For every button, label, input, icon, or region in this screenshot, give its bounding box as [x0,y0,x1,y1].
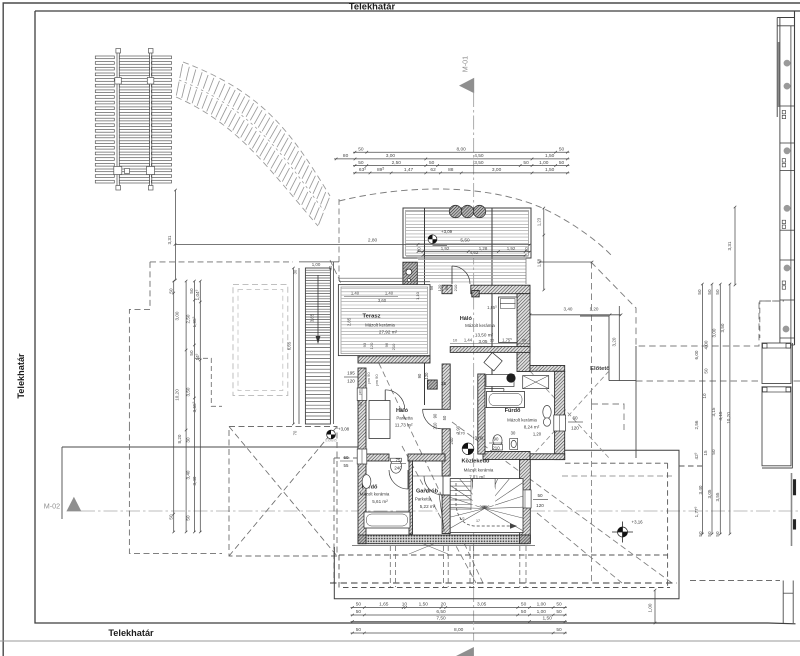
svg-text:240: 240 [394,466,402,471]
svg-text:Mázolt kerámia: Mázolt kerámia [365,323,395,328]
svg-text:50: 50 [537,493,543,498]
svg-text:3,50: 3,50 [185,387,190,396]
svg-text:2,56: 2,56 [694,420,699,429]
svg-text:4,62: 4,62 [470,250,479,255]
svg-text:60: 60 [344,455,349,460]
svg-text:120: 120 [571,426,579,431]
svg-text:Mázolt kerámia: Mázolt kerámia [507,418,537,423]
svg-text:11,73 m²: 11,73 m² [395,423,413,428]
svg-text:210: 210 [433,422,438,430]
svg-text:2,85: 2,85 [347,317,352,326]
svg-text:3,05: 3,05 [707,489,712,498]
svg-text:2,80: 2,80 [368,238,378,244]
svg-text:M-01: M-01 [461,56,470,72]
svg-text:120: 120 [347,379,355,384]
svg-text:6,50: 6,50 [436,609,446,615]
svg-text:3,00: 3,00 [386,153,396,159]
svg-text:15: 15 [703,450,708,456]
svg-text:35: 35 [441,381,446,386]
svg-text:55: 55 [344,463,349,468]
svg-text:Előtető: Előtető [325,439,336,443]
svg-text:10: 10 [702,393,707,399]
svg-text:50: 50 [556,602,562,608]
svg-text:90: 90 [417,373,422,378]
svg-text:50: 50 [698,531,703,537]
svg-text:50: 50 [711,449,716,455]
svg-text:1/2: 1/2 [460,517,465,521]
svg-text:50: 50 [559,160,565,166]
svg-text:50: 50 [169,288,174,294]
svg-text:3,00: 3,00 [712,328,717,337]
svg-text:210: 210 [492,446,500,451]
svg-text:3,40: 3,40 [185,470,190,479]
svg-text:3,05: 3,05 [477,602,487,608]
svg-text:210: 210 [453,284,458,291]
svg-text:10: 10 [453,338,458,343]
svg-text:60: 60 [572,416,578,421]
svg-text:3,50: 3,50 [474,160,484,166]
svg-text:Telekhatár: Telekhatár [108,628,154,638]
svg-text:1,00: 1,00 [648,603,653,612]
svg-text:10,20: 10,20 [726,412,731,424]
svg-text:1,50: 1,50 [545,153,555,159]
svg-text:1,00: 1,00 [539,160,549,166]
svg-text:Előtető: Előtető [590,366,610,372]
svg-text:Gardrób: Gardrób [416,489,439,495]
svg-text:50: 50 [521,609,527,615]
svg-text:8,20: 8,20 [177,434,182,443]
svg-text:5,61 m²: 5,61 m² [372,499,388,504]
svg-text:3,15: 3,15 [711,407,716,416]
svg-text:1,00: 1,00 [537,609,547,615]
svg-text:1,40: 1,40 [385,291,394,296]
svg-text:pm 90: pm 90 [374,374,379,386]
svg-text:90: 90 [494,437,499,442]
svg-text:50: 50 [356,609,362,615]
svg-text:62: 62 [430,167,436,173]
svg-text:27,92 m²: 27,92 m² [379,330,398,335]
svg-text:70: 70 [293,430,298,435]
svg-text:50: 50 [358,146,364,152]
svg-text:3,40: 3,40 [192,476,197,485]
svg-text:50: 50 [189,288,194,294]
svg-text:1,92: 1,92 [441,246,450,251]
svg-text:Mázolt kerámia: Mázolt kerámia [360,492,390,497]
svg-text:+3,00: +3,00 [472,436,484,441]
svg-text:120: 120 [437,284,442,291]
svg-text:90: 90 [433,413,438,418]
svg-text:10: 10 [402,602,408,608]
svg-text:75: 75 [396,458,401,463]
svg-text:Fürdő: Fürdő [505,408,521,414]
svg-text:90: 90 [444,285,449,290]
svg-text:3,60: 3,60 [378,298,387,303]
svg-text:3,31: 3,31 [727,241,732,250]
svg-text:1,20: 1,20 [590,307,599,312]
svg-text:+3,09: +3,09 [441,229,453,234]
svg-text:4,00: 4,00 [703,340,708,349]
svg-text:Telekhatár: Telekhatár [16,353,26,399]
svg-text:3,31: 3,31 [167,235,172,244]
svg-text:2,50: 2,50 [392,160,402,166]
svg-text:Parketta: Parketta [415,497,432,502]
svg-text:+3,08: +3,08 [338,427,350,432]
svg-text:50: 50 [358,160,364,166]
svg-text:50: 50 [429,160,435,166]
svg-text:3,20: 3,20 [612,337,617,346]
svg-text:3,00: 3,00 [492,167,502,173]
svg-text:120: 120 [369,342,374,349]
svg-text:Háló: Háló [460,316,473,322]
svg-text:80: 80 [343,153,349,159]
svg-text:120: 120 [536,503,544,508]
svg-text:6,00: 6,00 [694,350,699,359]
svg-text:17: 17 [476,519,480,523]
svg-text:50: 50 [442,415,447,420]
svg-text:30: 30 [511,431,516,436]
svg-text:195: 195 [347,371,355,376]
svg-text:40: 40 [328,265,333,270]
svg-text:Közlekedő: Közlekedő [462,459,491,465]
svg-text:50: 50 [523,160,529,166]
svg-text:20: 20 [524,247,529,252]
svg-text:1,40: 1,40 [351,291,360,296]
svg-text:Terasz: Terasz [363,314,381,320]
svg-text:50: 50 [715,289,720,295]
svg-text:93: 93 [362,342,367,347]
svg-text:4,50: 4,50 [474,153,484,159]
svg-text:+3,16: +3,16 [632,520,644,525]
svg-text:Mázolt kerámia: Mázolt kerámia [465,323,495,328]
svg-text:88: 88 [448,167,454,173]
svg-text:50: 50 [356,627,362,633]
svg-text:Telekhatár: Telekhatár [349,1,396,12]
svg-text:1,70: 1,70 [457,431,466,436]
svg-text:30: 30 [185,437,190,443]
svg-text:30: 30 [490,338,495,343]
svg-text:90: 90 [359,402,363,406]
svg-text:50: 50 [356,602,362,608]
svg-text:50: 50 [697,289,702,295]
svg-text:6,65: 6,65 [286,341,291,350]
svg-text:8,00: 8,00 [457,146,467,152]
svg-text:50: 50 [185,515,190,521]
svg-text:5,50: 5,50 [460,238,470,244]
svg-text:3,55: 3,55 [715,492,720,501]
svg-text:50: 50 [521,602,527,608]
svg-text:1,92: 1,92 [507,246,516,251]
svg-text:50: 50 [559,146,565,152]
svg-text:Mázolt kerámia: Mázolt kerámia [464,468,494,473]
svg-text:Háló: Háló [396,408,409,414]
svg-text:3,85: 3,85 [309,313,314,322]
svg-text:8,00: 8,00 [454,627,464,633]
svg-text:1,50: 1,50 [419,602,429,608]
svg-text:50: 50 [715,531,720,537]
svg-text:210: 210 [391,343,396,350]
svg-text:1,50: 1,50 [543,616,553,622]
svg-text:1,20: 1,20 [533,432,542,437]
svg-text:1,00: 1,00 [312,262,321,267]
svg-text:1,28: 1,28 [479,246,488,251]
svg-text:20: 20 [441,602,447,608]
svg-text:3,50: 3,50 [720,323,725,332]
svg-text:3,40: 3,40 [564,307,573,312]
svg-text:50: 50 [707,289,712,295]
svg-text:1,10: 1,10 [415,291,420,300]
svg-text:Parketta: Parketta [396,416,413,421]
svg-text:7,50: 7,50 [436,616,446,622]
svg-text:96: 96 [384,342,389,347]
svg-text:96: 96 [429,285,434,290]
svg-text:pm: pm [358,389,362,394]
svg-text:1,50: 1,50 [545,167,555,173]
svg-text:1,23: 1,23 [537,217,542,226]
svg-text:30: 30 [522,338,527,343]
svg-text:2,50: 2,50 [185,314,190,323]
svg-text:8,24 m²: 8,24 m² [524,425,540,430]
svg-text:M-02: M-02 [44,502,60,511]
svg-text:50: 50 [556,627,562,633]
svg-text:20: 20 [417,247,422,252]
svg-text:50: 50 [189,350,194,356]
svg-text:3,40: 3,40 [698,485,703,494]
svg-text:10,20: 10,20 [175,389,180,401]
svg-text:120: 120 [424,372,429,380]
svg-text:4,15: 4,15 [718,411,723,420]
svg-text:50: 50 [556,609,562,615]
svg-text:pm 90: pm 90 [366,372,371,384]
svg-text:3,00: 3,00 [175,311,180,320]
svg-text:50: 50 [707,531,712,537]
svg-text:240: 240 [449,437,454,445]
svg-text:1,47: 1,47 [404,167,414,173]
svg-text:50: 50 [703,368,708,374]
svg-text:1,44: 1,44 [464,338,473,343]
svg-text:1,00: 1,00 [537,602,547,608]
svg-text:1,65: 1,65 [379,602,389,608]
svg-text:5,22 m²: 5,22 m² [420,504,436,509]
